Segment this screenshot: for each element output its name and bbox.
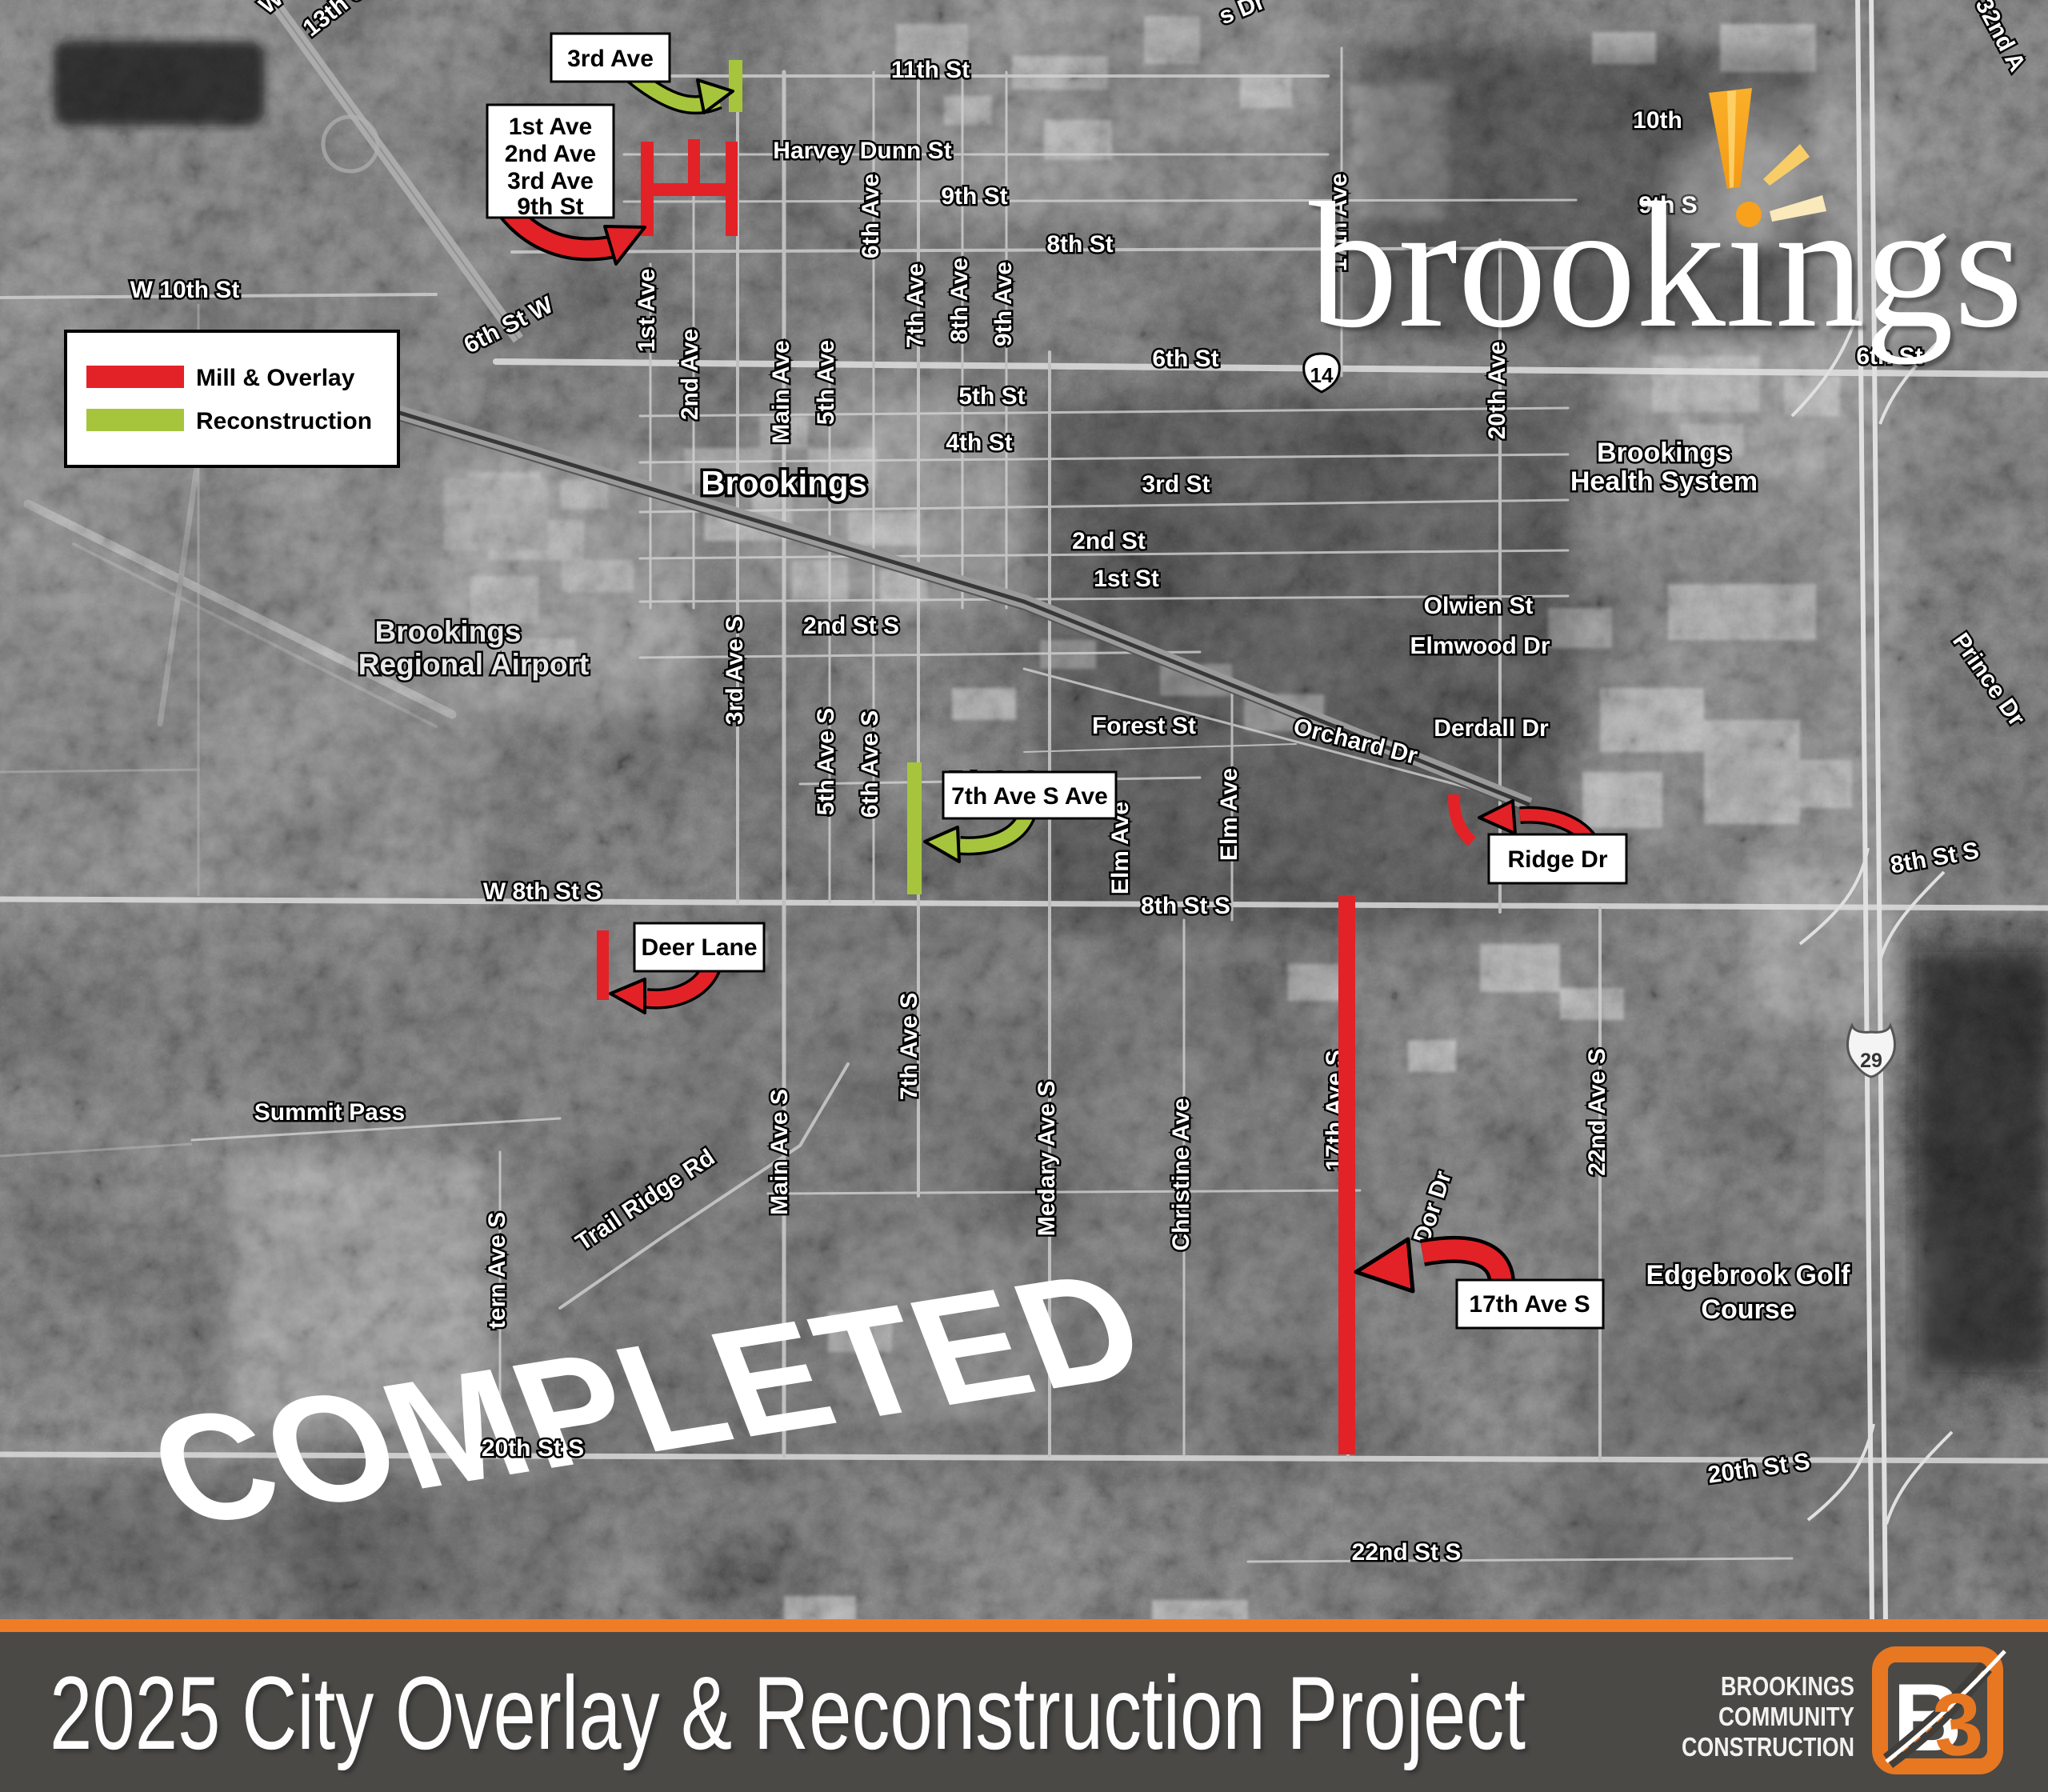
svg-text:2nd Ave: 2nd Ave (505, 141, 596, 167)
svg-text:3: 3 (1929, 1674, 1986, 1776)
svg-text:1st Ave: 1st Ave (509, 114, 593, 140)
svg-text:2nd St: 2nd St (1072, 528, 1146, 554)
svg-text:29: 29 (1860, 1050, 1882, 1072)
svg-text:W 8th St S: W 8th St S (483, 878, 602, 905)
svg-text:9th St: 9th St (517, 194, 583, 220)
svg-text:6th Ave S: 6th Ave S (857, 710, 883, 818)
svg-text:5th Ave S: 5th Ave S (813, 708, 839, 816)
svg-text:9th Ave: 9th Ave (990, 262, 1017, 346)
svg-text:Brookings: Brookings (1597, 438, 1731, 468)
svg-text:W 10th St: W 10th St (130, 277, 240, 303)
svg-text:Derdall Dr: Derdall Dr (1434, 715, 1549, 742)
svg-text:Summit Pass: Summit Pass (254, 1099, 405, 1126)
svg-text:7th Ave: 7th Ave (902, 263, 929, 348)
svg-text:8th St: 8th St (1046, 231, 1113, 258)
svg-text:Reconstruction: Reconstruction (196, 408, 372, 434)
svg-text:22nd St S: 22nd St S (1352, 1539, 1462, 1566)
svg-text:8th Ave: 8th Ave (946, 258, 973, 342)
svg-text:3rd Ave S: 3rd Ave S (722, 616, 748, 725)
svg-text:tern Ave S: tern Ave S (484, 1212, 510, 1329)
svg-text:17th Ave S: 17th Ave S (1469, 1291, 1590, 1318)
svg-text:9th St: 9th St (941, 183, 1007, 210)
svg-text:6th Ave: 6th Ave (858, 174, 884, 258)
svg-text:5th Ave: 5th Ave (813, 340, 839, 425)
svg-text:4th St: 4th St (946, 430, 1012, 456)
svg-text:10th: 10th (1633, 107, 1682, 134)
svg-text:2025 City Overlay & Reconstruc: 2025 City Overlay & Reconstruction Proje… (50, 1654, 1526, 1771)
svg-text:Christine Ave: Christine Ave (1168, 1098, 1194, 1250)
svg-text:Deer Lane: Deer Lane (641, 934, 757, 961)
svg-text:Ridge Dr: Ridge Dr (1507, 846, 1607, 873)
svg-text:Harvey Dunn St: Harvey Dunn St (773, 138, 951, 164)
svg-text:11th St: 11th St (891, 57, 970, 83)
svg-text:Health System: Health System (1570, 466, 1758, 497)
svg-text:5th St: 5th St (958, 383, 1025, 410)
svg-text:7th Ave S Ave: 7th Ave S Ave (951, 783, 1108, 810)
svg-text:BROOKINGS: BROOKINGS (1721, 1671, 1854, 1701)
svg-text:1st St: 1st St (1094, 566, 1159, 592)
svg-text:Mill & Overlay: Mill & Overlay (196, 365, 355, 391)
svg-text:3rd Ave: 3rd Ave (507, 168, 594, 194)
svg-text:3rd St: 3rd St (1142, 471, 1210, 498)
svg-text:6th St: 6th St (1152, 346, 1218, 372)
svg-text:Course: Course (1701, 1294, 1794, 1325)
svg-text:2nd St S: 2nd St S (803, 613, 899, 639)
svg-text:Brookings: Brookings (375, 615, 522, 648)
svg-text:3rd Ave: 3rd Ave (567, 46, 654, 72)
svg-text:1st Ave: 1st Ave (634, 269, 660, 353)
svg-text:Edgebrook Golf: Edgebrook Golf (1646, 1260, 1851, 1290)
svg-text:Forest St: Forest St (1092, 713, 1196, 739)
svg-text:20th St S: 20th St S (482, 1435, 584, 1462)
svg-text:Elmwood Dr: Elmwood Dr (1410, 633, 1550, 659)
svg-text:22nd Ave S: 22nd Ave S (1584, 1048, 1610, 1176)
svg-text:CONSTRUCTION: CONSTRUCTION (1682, 1732, 1854, 1762)
svg-text:Elm Ave: Elm Ave (1216, 768, 1242, 861)
svg-text:8th St S: 8th St S (1141, 893, 1230, 919)
svg-text:Medary Ave S: Medary Ave S (1034, 1081, 1060, 1237)
svg-text:Brookings: Brookings (701, 464, 867, 502)
svg-text:Main Ave S: Main Ave S (766, 1089, 793, 1215)
svg-text:7th Ave S: 7th Ave S (896, 993, 922, 1101)
svg-text:COMMUNITY: COMMUNITY (1718, 1702, 1854, 1731)
svg-text:2nd Ave: 2nd Ave (677, 329, 703, 420)
svg-text:Regional Airport: Regional Airport (358, 648, 589, 681)
svg-text:brookıngs: brookıngs (1309, 165, 2023, 365)
svg-text:Olwien St: Olwien St (1424, 593, 1534, 619)
svg-text:Main Ave: Main Ave (768, 340, 794, 443)
